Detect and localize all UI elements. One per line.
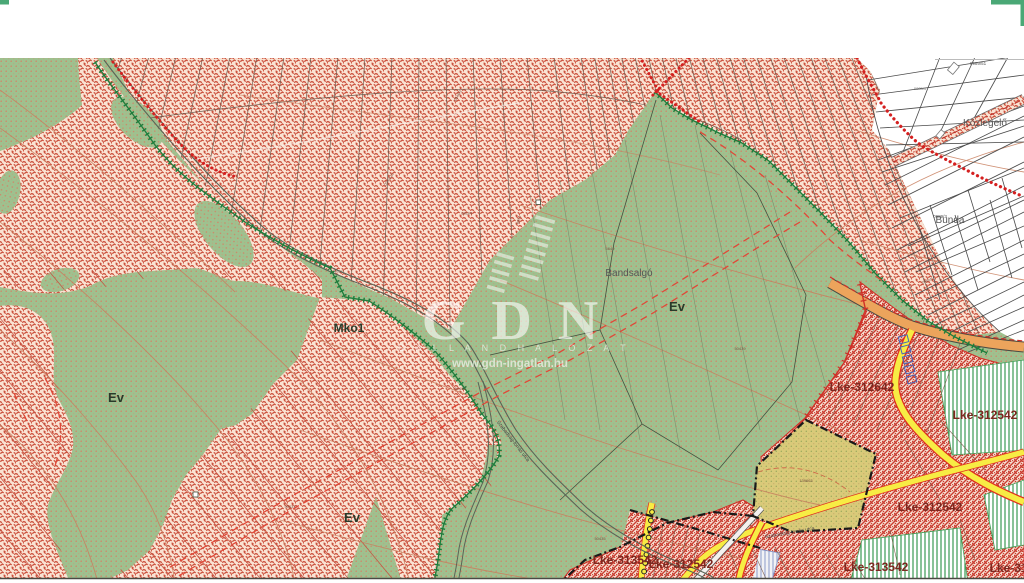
svg-text:Ev: Ev <box>344 510 361 525</box>
svg-text:50439: 50439 <box>734 346 746 351</box>
svg-text:Mko1: Mko1 <box>334 321 365 335</box>
svg-text:Bandsalgó: Bandsalgó <box>605 268 653 279</box>
svg-text:www.gdn-ingatlan.hu: www.gdn-ingatlan.hu <box>451 358 568 370</box>
svg-text:Lke-312: Lke-312 <box>990 561 1024 575</box>
svg-text:Közlegelő: Közlegelő <box>963 118 1007 129</box>
svg-text:Lke-312542: Lke-312542 <box>953 408 1018 422</box>
svg-text:Lke-313542: Lke-313542 <box>593 553 658 567</box>
svg-text:Lke-313542: Lke-313542 <box>844 560 909 574</box>
svg-text:Lke-312542: Lke-312542 <box>649 557 714 571</box>
svg-text:0953/4: 0953/4 <box>461 211 472 215</box>
svg-text:50433: 50433 <box>454 386 466 391</box>
svg-text:5649: 5649 <box>606 246 616 251</box>
svg-text:G A L L A N D H A L O Z A T: G A L L A N D H A L O Z A T <box>398 343 630 353</box>
svg-text:Ev: Ev <box>108 390 125 405</box>
svg-text:0989/3: 0989/3 <box>933 214 947 219</box>
svg-text:Lke-312642: Lke-312642 <box>830 380 895 394</box>
svg-text:50435: 50435 <box>594 536 606 541</box>
svg-text:139663: 139663 <box>799 478 813 483</box>
svg-text:Lke-312542: Lke-312542 <box>898 500 963 514</box>
svg-text:50431: 50431 <box>284 504 296 509</box>
svg-text:Ev: Ev <box>669 299 686 314</box>
svg-text:0989/1: 0989/1 <box>914 86 927 91</box>
svg-text:0989/51: 0989/51 <box>970 61 987 66</box>
